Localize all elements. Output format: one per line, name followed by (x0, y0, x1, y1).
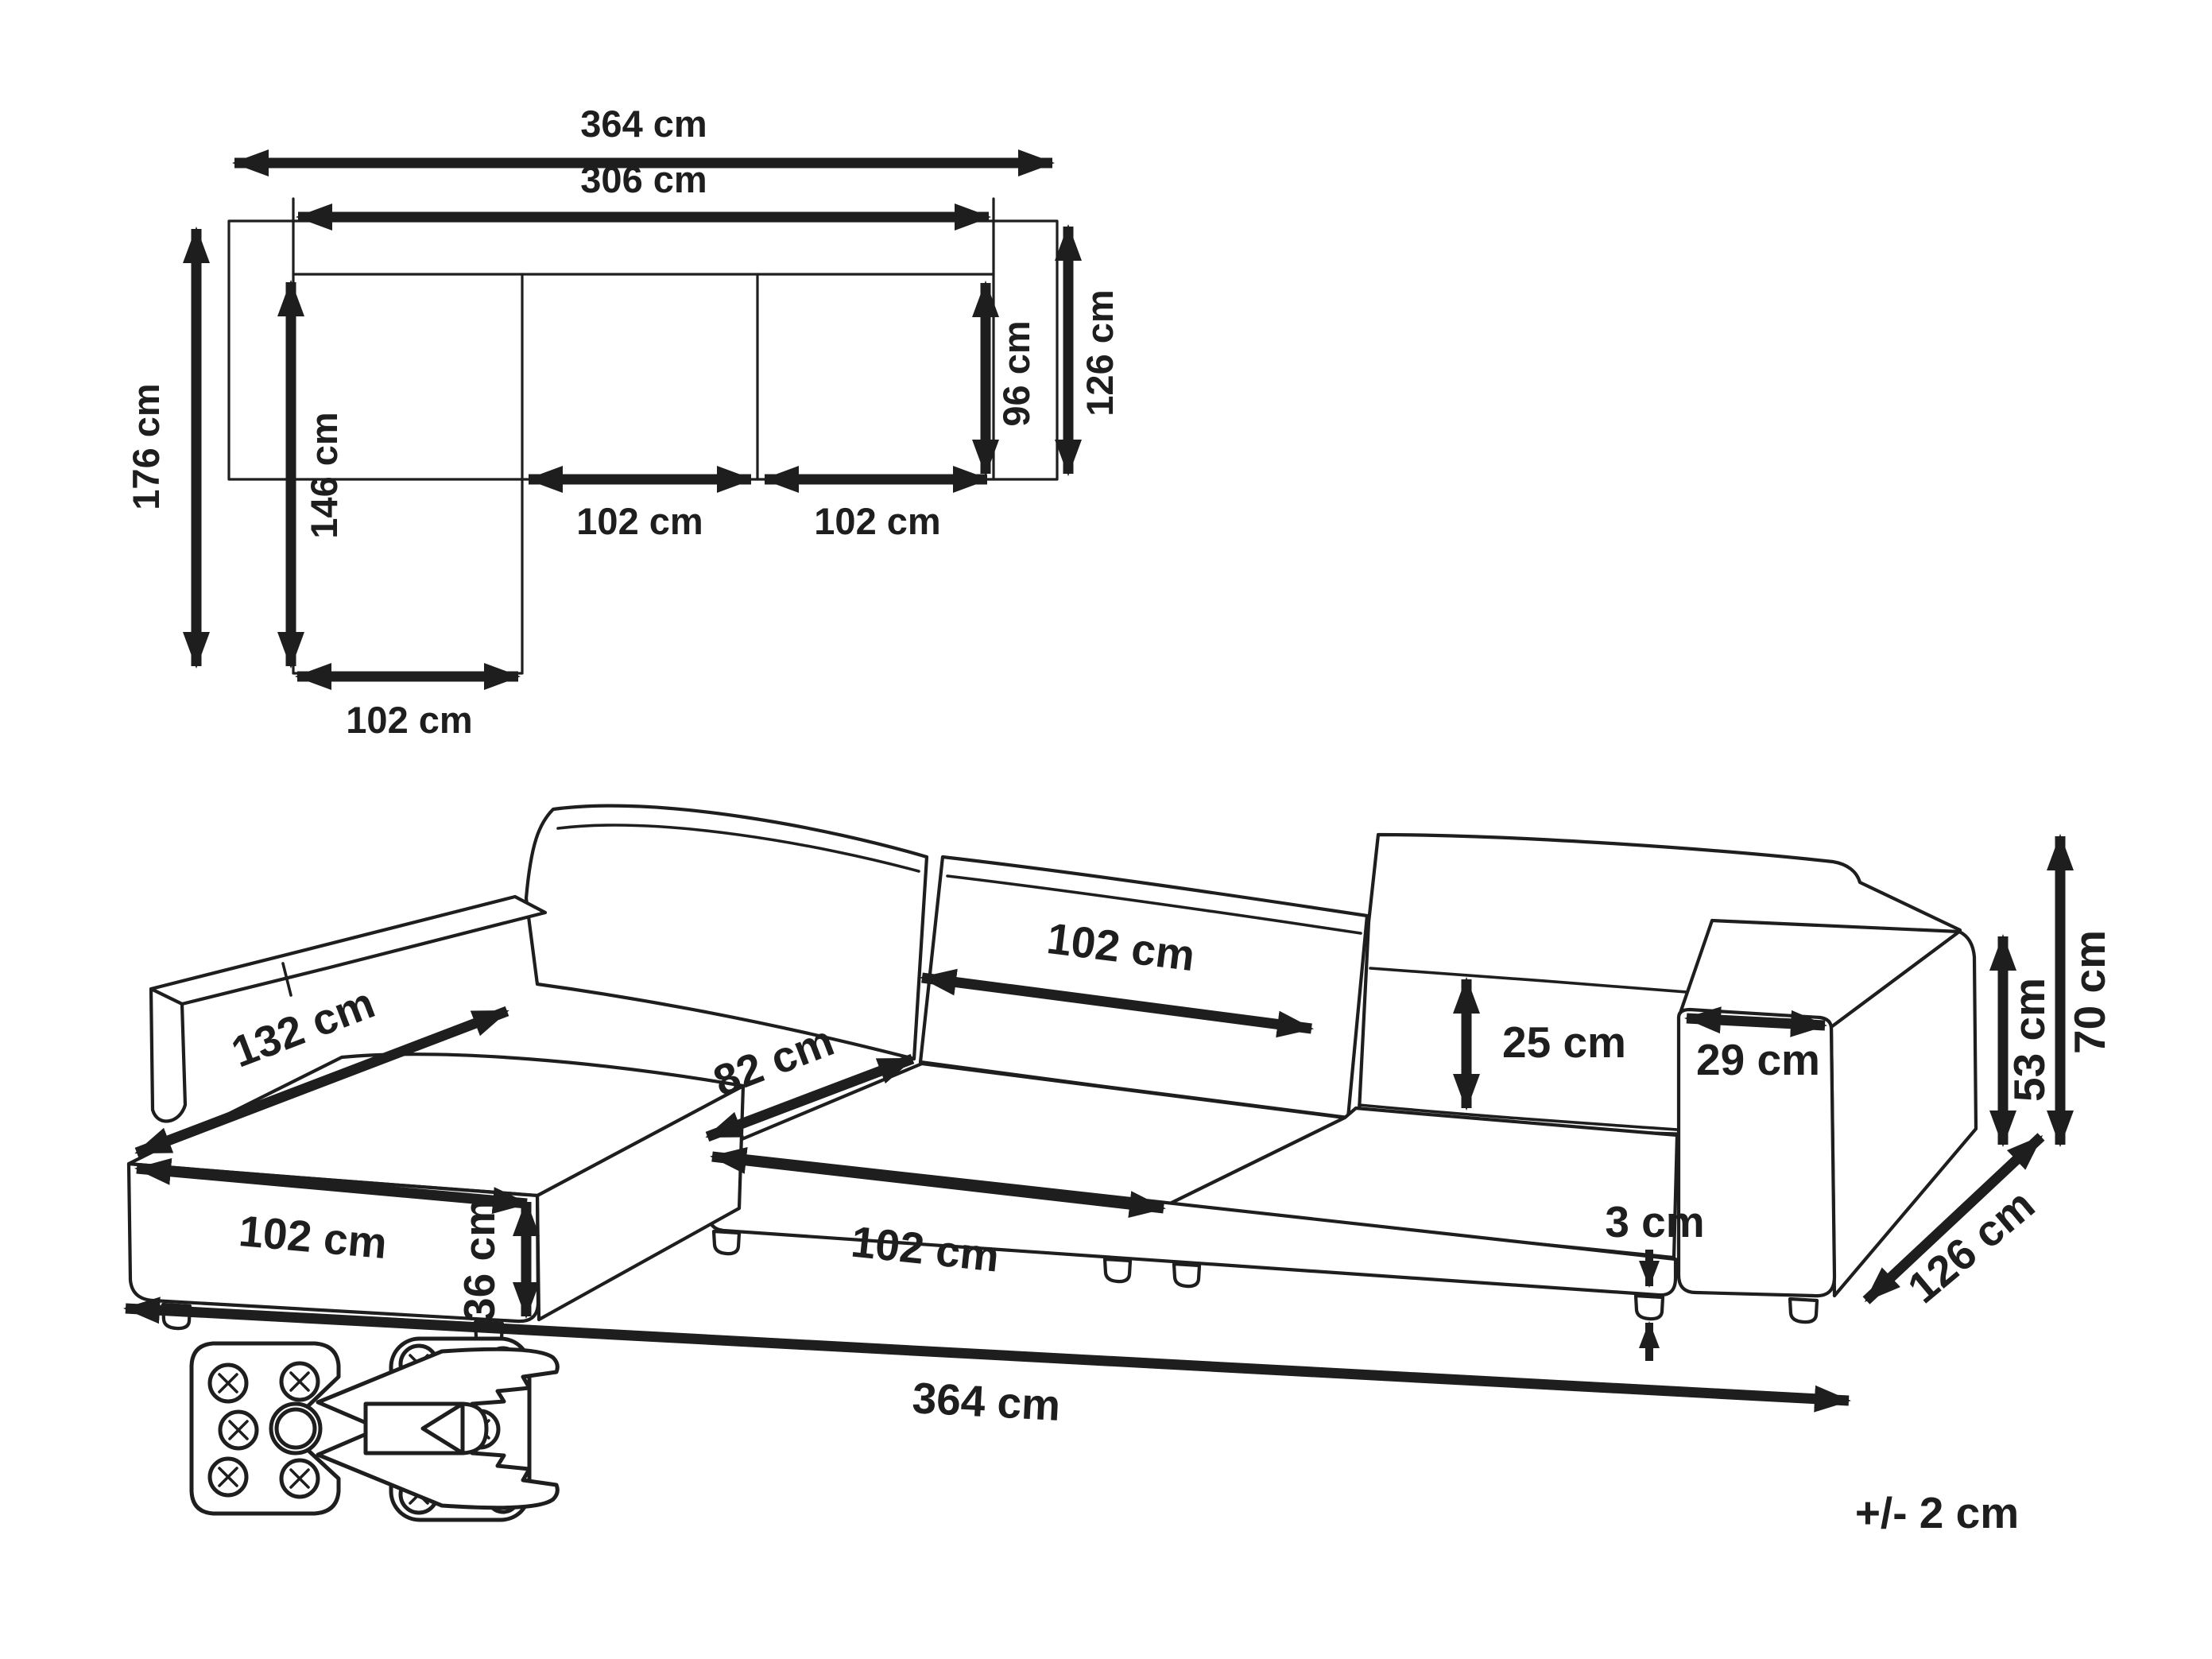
plan-seat-depth-label: 96 cm (995, 320, 1037, 426)
plan-right-depth-label: 126 cm (1079, 289, 1121, 416)
total-height-label: 70 cm (2065, 930, 2114, 1054)
perspective-view: 132 cm 102 cm 36 cm 82 cm 102 cm 102 cm … (126, 806, 2114, 1430)
plan-right-seat-width-label: 102 cm (814, 500, 940, 542)
total-width-label-3d: 364 cm (911, 1373, 1062, 1430)
leg-height-label: 3 cm (1605, 1197, 1704, 1246)
plan-inner-width-label: 306 cm (580, 158, 707, 200)
left-armrest-face (151, 989, 185, 1121)
top-view: 364 cm 306 cm 176 cm 146 cm 96 cm 126 cm… (125, 103, 1121, 741)
plan-chaise-width-label: 102 cm (346, 699, 472, 741)
armrest-width-label: 29 cm (1696, 1035, 1820, 1084)
plan-total-width-label: 364 cm (580, 103, 707, 145)
plan-chaise-depth-label: 146 cm (303, 412, 345, 538)
plan-total-depth-label: 176 cm (125, 383, 167, 510)
armrest-height-label: 53 cm (2005, 978, 2054, 1102)
headrest-height-label: 25 cm (1502, 1017, 1626, 1067)
top-view-outline (229, 199, 1057, 673)
plan-mid-seat-width-label: 102 cm (576, 500, 703, 542)
backrest-left-panel (526, 806, 927, 1059)
sofa-dimension-diagram: 364 cm 306 cm 176 cm 146 cm 96 cm 126 cm… (0, 0, 2212, 1659)
armrest-width-arrow (1687, 1018, 1825, 1025)
tolerance-note: +/- 2 cm (1855, 1488, 2019, 1537)
plan-body (229, 221, 1057, 479)
seat-height-label: 36 cm (455, 1198, 504, 1322)
sofa-connector-bracket-icon (192, 1339, 557, 1520)
